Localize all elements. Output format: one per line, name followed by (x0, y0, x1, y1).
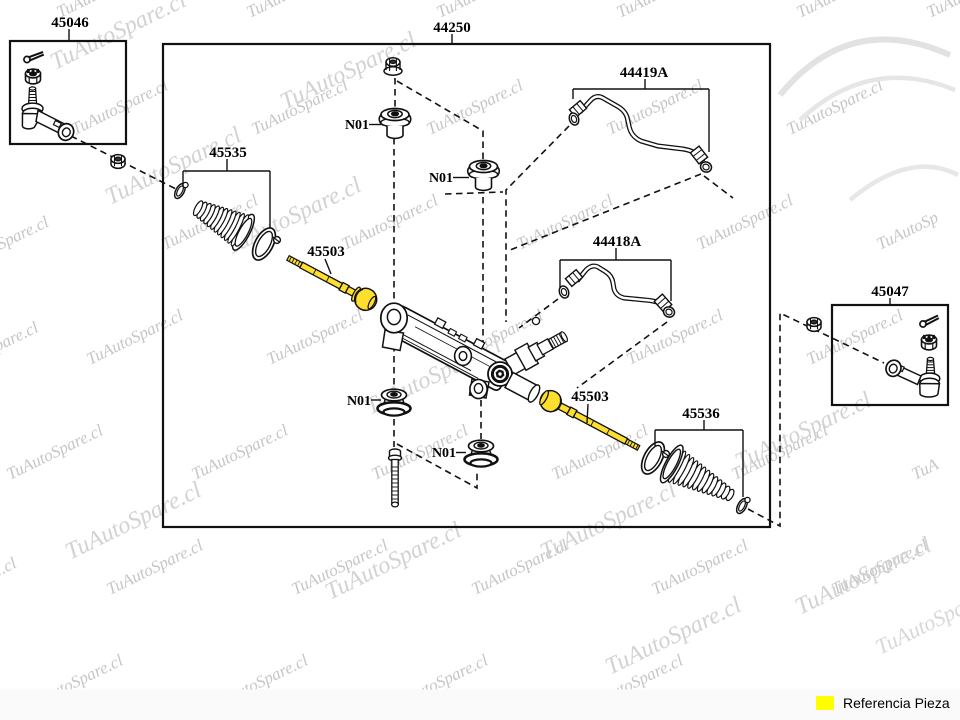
svg-text:TuAutoSpare.cl: TuAutoSpare.cl (783, 76, 886, 139)
svg-text:44250: 44250 (433, 20, 471, 36)
svg-text:N01: N01 (429, 171, 453, 186)
svg-text:TuA: TuA (908, 454, 942, 483)
svg-text:N01: N01 (432, 446, 456, 461)
svg-text:TuAutoSpare.cl: TuAutoSpare.cl (188, 421, 291, 484)
svg-text:Referencia Pieza: Referencia Pieza (843, 695, 950, 711)
svg-text:TuAutoSpare.cl: TuAutoSpare.cl (623, 306, 726, 369)
svg-text:TuAutoSpare.cl: TuAutoSpare.cl (423, 76, 526, 139)
svg-text:TuAu: TuAu (923, 0, 960, 22)
svg-text:TuAutoSpare.cl: TuAutoSpare.cl (103, 536, 206, 599)
svg-text:N01: N01 (345, 118, 369, 133)
svg-text:45535: 45535 (209, 145, 247, 161)
svg-text:TuAutoSpare.cl: TuAutoSpare.cl (68, 76, 171, 139)
svg-text:TuAutoSpare.cl: TuAutoSpare.cl (791, 532, 936, 620)
svg-text:utoSpare.cl: utoSpare.cl (0, 318, 41, 369)
svg-text:45046: 45046 (51, 15, 89, 31)
svg-text:TuAutoSp: TuAutoSp (873, 208, 941, 254)
svg-text:Spare.cl: Spare.cl (0, 212, 52, 254)
svg-text:TuAutoSpare.cl: TuAutoSpare.cl (3, 421, 106, 484)
svg-text:TuAutoSpare.cl: TuAutoSpare.cl (871, 578, 960, 660)
svg-text:44419A: 44419A (620, 65, 669, 81)
svg-text:oSpare.cl: oSpare.cl (0, 553, 20, 598)
svg-text:TuAutoSpare.cl: TuAutoSpare.cl (793, 0, 896, 22)
svg-text:TuAutoSpare.cl: TuAutoSpare.cl (693, 191, 796, 254)
svg-text:Spare.cl: Spare.cl (0, 0, 7, 22)
svg-text:TuAutoSpare.cl: TuAutoSpare.cl (536, 477, 681, 565)
svg-text:44418A: 44418A (593, 234, 642, 250)
svg-text:TuAutoSpare.cl: TuAutoSpare.cl (648, 536, 751, 599)
svg-text:45536: 45536 (682, 406, 720, 422)
svg-text:TuAutoSpare.cl: TuAutoSpare.cl (83, 306, 186, 369)
svg-text:TuAutoSpare.cl: TuAutoSpare.cl (803, 306, 906, 369)
svg-text:TuAutoSpare.cl: TuAutoSpare.cl (613, 0, 716, 22)
svg-text:TuAutoSpare.cl: TuAutoSpare.cl (433, 0, 536, 22)
svg-text:TuAutoSpare.cl: TuAutoSpare.cl (263, 306, 366, 369)
svg-text:45503: 45503 (571, 389, 609, 405)
svg-text:45503: 45503 (307, 244, 345, 260)
svg-text:TuAutoSpare.cl: TuAutoSpare.cl (243, 0, 346, 22)
svg-text:45047: 45047 (871, 284, 909, 300)
svg-text:N01: N01 (347, 394, 371, 409)
svg-text:TuAutoSpare.cl: TuAutoSpare.cl (731, 387, 876, 475)
